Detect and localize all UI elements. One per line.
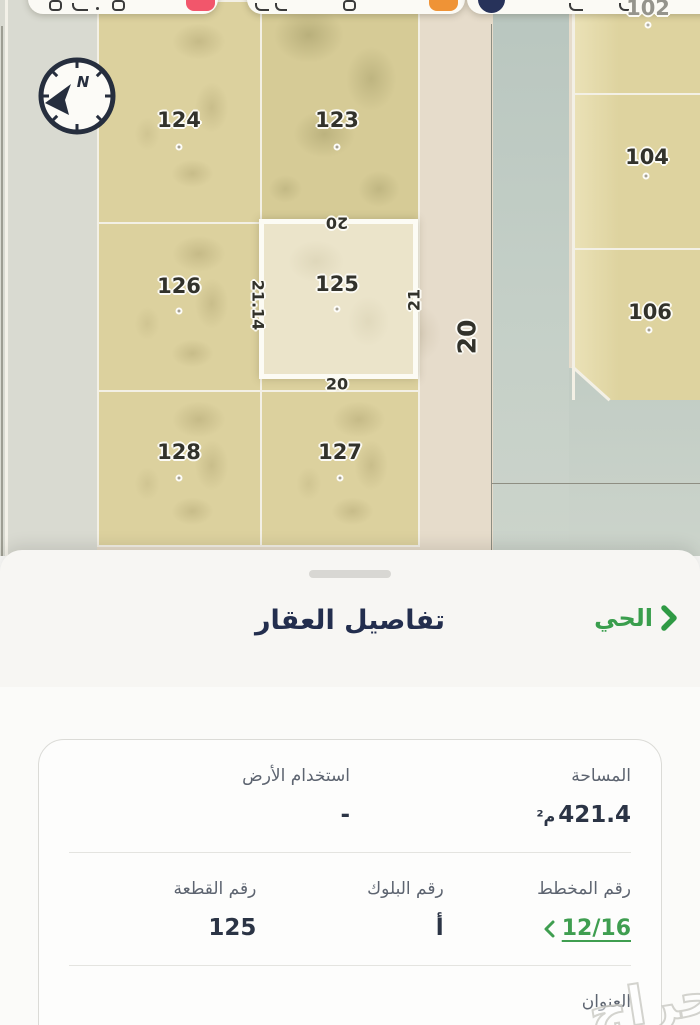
address-label: العنوان: [69, 992, 631, 1012]
parcel-number-value: 125: [69, 915, 256, 941]
dimension-label-top: 20: [326, 214, 348, 233]
area-label: المساحة: [350, 766, 631, 786]
property-details-card: المساحة 421.4م² استخدام الأرض - رقم المخ…: [38, 739, 662, 1025]
parcel-centroid-dot: [643, 173, 650, 180]
parcel-centroid-dot: [334, 306, 341, 313]
area-field: المساحة 421.4م²: [350, 766, 631, 828]
land-use-value: -: [69, 802, 350, 828]
parcel-centroid-dot: [334, 144, 341, 151]
layers-icon: [343, 0, 356, 11]
district-link-label: الحي: [594, 604, 653, 632]
land-use-field: استخدام الأرض -: [69, 766, 350, 828]
parcel-label: 128: [157, 440, 201, 464]
street-number-label: 20: [453, 320, 482, 355]
parcel-label: 126: [157, 274, 201, 298]
parcel-number-field: رقم القطعة 125: [69, 879, 256, 941]
sheet-body: المساحة 421.4م² استخدام الأرض - رقم المخ…: [0, 687, 700, 1025]
address-field: العنوان: [69, 992, 631, 1012]
parcel-centroid-dot: [176, 144, 183, 151]
property-details-sheet: تفاصيل العقار الحي المساحة 421.4م² استخد…: [0, 550, 700, 1025]
parcel-label: 123: [315, 108, 359, 132]
arabic-text-fragment: [96, 7, 99, 10]
parcel-centroid-dot: [176, 308, 183, 315]
road-crossline: [492, 483, 700, 484]
street-edge-line: [1, 26, 3, 556]
plan-number-field: رقم المخطط 12/16: [444, 879, 631, 941]
app-screen: 124 123 126 125 128 127 104 106 102 20 2…: [0, 0, 700, 1025]
map-filter-chip-middle[interactable]: [247, 0, 465, 14]
orange-rounded-icon: [429, 0, 458, 11]
parcel-label: 102: [626, 0, 670, 20]
parcel-label-selected: 125: [315, 272, 359, 296]
area-unit: م²: [536, 807, 555, 826]
navy-circle-icon: [478, 0, 505, 13]
parcel-number-label: رقم القطعة: [69, 879, 256, 899]
area-value: 421.4م²: [350, 802, 631, 828]
parcel-centroid-dot: [176, 475, 183, 482]
svg-text:N: N: [77, 73, 90, 91]
parcel-boundary-line: [5, 0, 8, 556]
chevron-right-icon: [660, 605, 678, 631]
block-number-value: أ: [256, 915, 443, 941]
road-centerline: [491, 24, 492, 556]
parcel-127[interactable]: [260, 390, 420, 547]
arabic-text-fragment: [569, 3, 583, 11]
parcel-104[interactable]: [575, 95, 700, 250]
dimension-label-bottom: 20: [326, 375, 348, 394]
layers-icon: [112, 0, 125, 11]
details-row-3: العنوان: [69, 966, 631, 1012]
arabic-text-fragment: [255, 3, 269, 11]
parcel-label: 127: [318, 440, 362, 464]
parcel-centroid-dot: [646, 327, 653, 334]
arabic-text-fragment: [72, 3, 88, 11]
parcel-128[interactable]: [97, 390, 262, 547]
layers-icon: [49, 0, 62, 11]
parcel-centroid-dot: [337, 475, 344, 482]
sheet-drag-handle[interactable]: [309, 570, 391, 578]
road-vertical: [493, 0, 569, 556]
district-back-link[interactable]: الحي: [594, 604, 678, 632]
details-row-1: المساحة 421.4م² استخدام الأرض -: [69, 740, 631, 828]
dimension-label-left: 21.14: [249, 280, 268, 331]
parcel-label: 106: [628, 300, 672, 324]
block-number-label: رقم البلوك: [256, 879, 443, 899]
parcel-centroid-dot: [645, 22, 652, 29]
parcel-106[interactable]: [575, 250, 700, 400]
chevron-left-icon: [542, 919, 556, 939]
arabic-text-fragment: [275, 3, 287, 11]
block-number-field: رقم البلوك أ: [256, 879, 443, 941]
right-parcel-block: [572, 0, 700, 400]
plan-number-link[interactable]: 12/16: [542, 916, 631, 941]
details-row-2: رقم المخطط 12/16 رقم البلوك أ: [69, 853, 631, 941]
plan-number-label: رقم المخطط: [444, 879, 631, 899]
dimension-label-right: 21: [405, 289, 424, 311]
red-rounded-icon: [186, 0, 215, 11]
parcel-label: 124: [157, 108, 201, 132]
map-filter-chip-left[interactable]: [28, 0, 218, 14]
parcel-label: 104: [625, 145, 669, 169]
selected-parcel-125[interactable]: [259, 219, 418, 379]
compass-control[interactable]: N: [35, 54, 119, 138]
land-use-label: استخدام الأرض: [69, 766, 350, 786]
compass-icon: N: [35, 54, 119, 138]
map-canvas[interactable]: 124 123 126 125 128 127 104 106 102 20 2…: [0, 0, 700, 556]
